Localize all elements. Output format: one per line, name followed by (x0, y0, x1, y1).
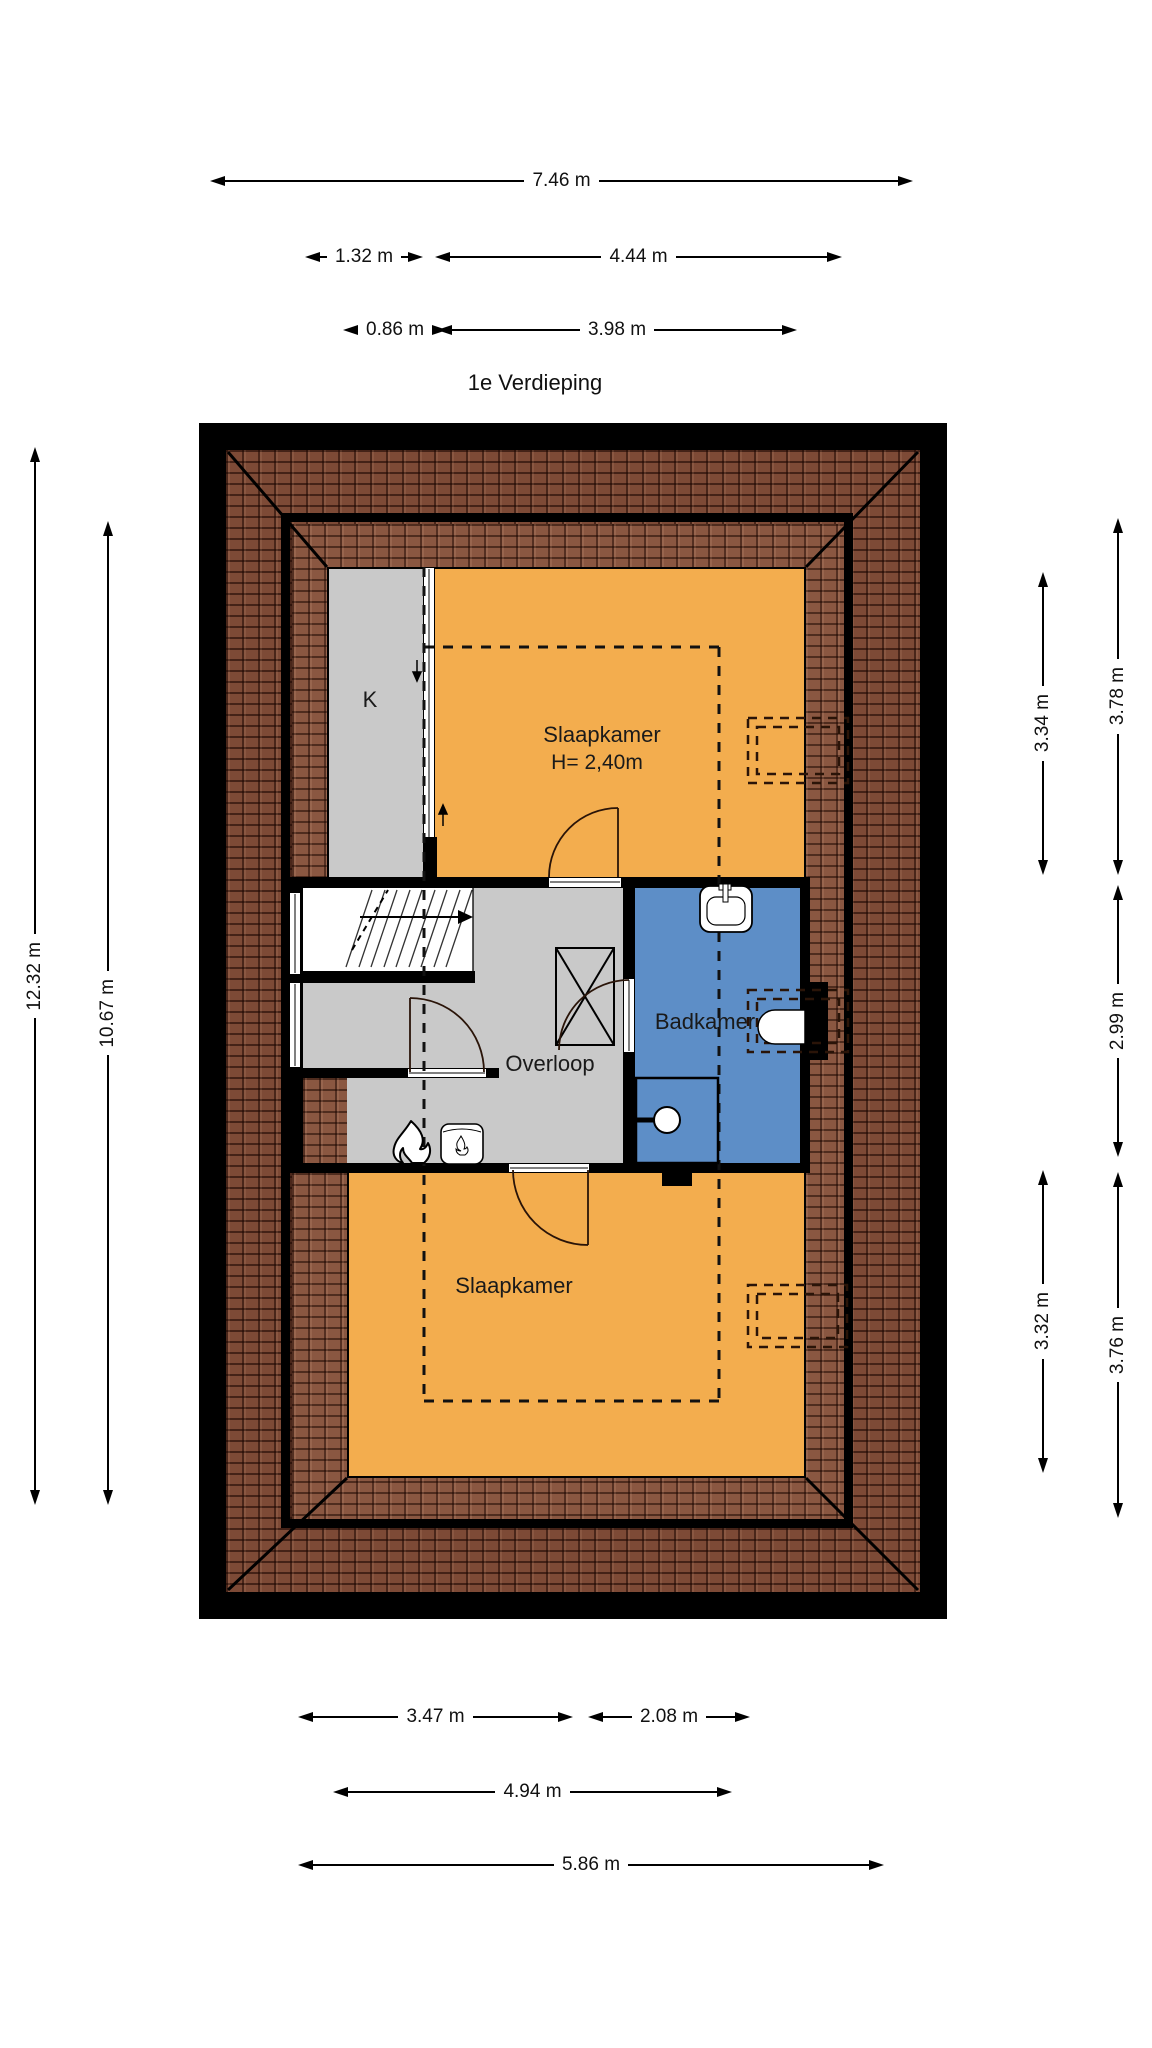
arrow-right-icon (869, 1860, 884, 1870)
door-bathroom (623, 978, 635, 1053)
arrow-down-icon (103, 1490, 113, 1505)
window-landing-left-1 (289, 892, 301, 975)
dim-top-444: 4.44 m (435, 245, 842, 269)
door-bedroom-top (548, 877, 622, 888)
closet-partition-window (423, 567, 435, 839)
label-bathroom: Badkamer (655, 1009, 755, 1035)
dim-label: 0.86 m (358, 319, 432, 341)
arrow-down-icon (1038, 860, 1048, 875)
dim-left-total: 12.32 m (23, 447, 47, 1505)
dim-top-total: 7.46 m (210, 169, 913, 193)
arrow-up-icon (1038, 1170, 1048, 1185)
arrow-up-icon (30, 447, 40, 462)
stairwell (303, 888, 473, 971)
dim-label: 3.78 m (1107, 659, 1129, 733)
arrow-up-icon (1113, 518, 1123, 533)
dim-top-398: 3.98 m (437, 318, 797, 342)
label-landing: Overloop (505, 1051, 594, 1077)
roof-patch-left (303, 1078, 347, 1163)
arrow-up-icon (103, 521, 113, 536)
arrow-left-icon (298, 1712, 313, 1722)
arrow-down-icon (1038, 1458, 1048, 1473)
room-bedroom-bottom (347, 1173, 806, 1478)
arrow-left-icon (343, 325, 358, 335)
label-bedroom-bottom: Slaapkamer (455, 1273, 572, 1299)
wall-tab (662, 1173, 692, 1186)
arrow-up-icon (1113, 885, 1123, 900)
arrow-left-icon (437, 325, 452, 335)
dim-label: 1.32 m (327, 246, 401, 268)
dim-label: 2.99 m (1107, 984, 1129, 1058)
arrow-right-icon (827, 252, 842, 262)
arrow-right-icon (408, 252, 423, 262)
page-title: 1e Verdieping (468, 370, 603, 396)
dim-label: 5.86 m (554, 1854, 628, 1876)
chimney-block (803, 982, 828, 1060)
arrow-right-icon (782, 325, 797, 335)
dim-label: 3.98 m (580, 319, 654, 341)
arrow-right-icon (717, 1787, 732, 1797)
arrow-up-icon (1113, 1172, 1123, 1187)
wall-boilerroom (303, 1068, 407, 1078)
label-bedroom-top: Slaapkamer (543, 722, 660, 748)
dim-right-299: 2.99 m (1106, 885, 1130, 1157)
arrow-left-icon (298, 1860, 313, 1870)
arrow-left-icon (333, 1787, 348, 1797)
dim-top-132: 1.32 m (305, 245, 423, 269)
dim-bottom-586: 5.86 m (298, 1853, 884, 1877)
dim-label: 4.44 m (601, 246, 675, 268)
dim-label: 10.67 m (97, 971, 119, 1056)
dim-label: 3.34 m (1032, 686, 1054, 760)
dim-label: 3.76 m (1107, 1308, 1129, 1382)
floorplan-page: 7.46 m 1.32 m 4.44 m 0.86 m 3.98 m 1e Ve… (0, 0, 1152, 2048)
dim-label: 7.46 m (524, 170, 598, 192)
arrow-left-icon (305, 252, 320, 262)
dim-right-332: 3.32 m (1031, 1170, 1055, 1473)
dim-bottom-347: 3.47 m (298, 1705, 573, 1729)
arrow-down-icon (1113, 1142, 1123, 1157)
arrow-down-icon (30, 1490, 40, 1505)
wall-stair-bottom (303, 971, 475, 983)
dim-top-086: 0.86 m (343, 318, 425, 342)
dim-label: 3.32 m (1032, 1284, 1054, 1358)
dim-label: 3.47 m (398, 1706, 472, 1728)
door-boilerroom (407, 1068, 487, 1078)
arrow-up-icon (1038, 572, 1048, 587)
dim-bottom-494: 4.94 m (333, 1780, 732, 1804)
dim-label: 2.08 m (632, 1706, 706, 1728)
wall-bathroom-left-a (623, 888, 635, 978)
wall-bathroom-left-b (623, 1053, 635, 1163)
dim-label: 12.32 m (24, 934, 46, 1019)
arrow-right-icon (735, 1712, 750, 1722)
dim-label: 4.94 m (495, 1781, 569, 1803)
arrow-left-icon (210, 176, 225, 186)
dim-bottom-208: 2.08 m (588, 1705, 750, 1729)
dim-right-378: 3.78 m (1106, 518, 1130, 875)
window-landing-left-2 (289, 982, 301, 1068)
wall-boilerroom-nub (487, 1068, 499, 1078)
arrow-left-icon (588, 1712, 603, 1722)
arrow-down-icon (1113, 860, 1123, 875)
arrow-left-icon (435, 252, 450, 262)
room-closet (327, 567, 423, 877)
arrow-down-icon (1113, 1503, 1123, 1518)
dim-right-376: 3.76 m (1106, 1172, 1130, 1518)
label-bedroom-top-height: H= 2,40m (551, 751, 643, 775)
label-closet: K (363, 687, 378, 713)
arrow-right-icon (558, 1712, 573, 1722)
dim-left-inner: 10.67 m (96, 521, 120, 1505)
dim-right-334: 3.34 m (1031, 572, 1055, 875)
arrow-right-icon (898, 176, 913, 186)
door-bedroom-bottom (508, 1163, 590, 1173)
